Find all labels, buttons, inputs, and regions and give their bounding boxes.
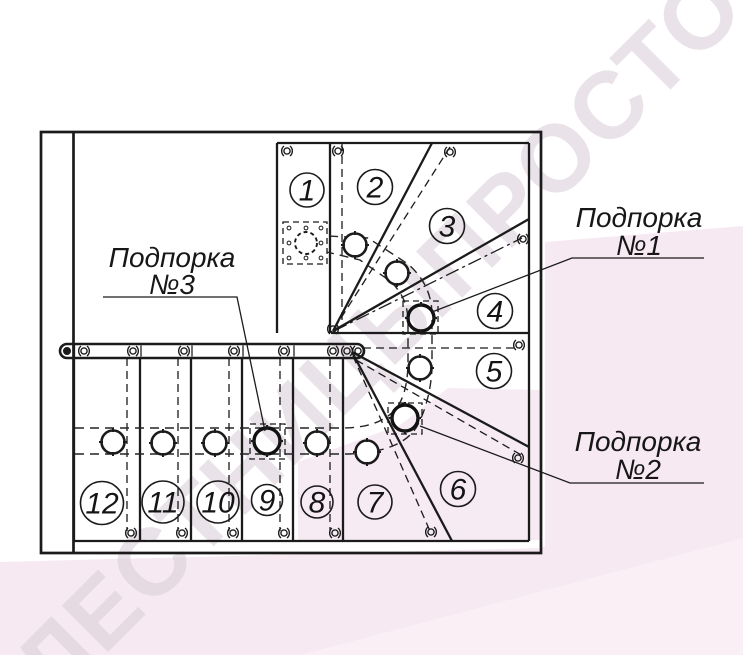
step-number-10: 10 [197, 481, 239, 523]
svg-text:10: 10 [201, 487, 235, 520]
step-number-1: 1 [290, 173, 324, 208]
svg-text:7: 7 [367, 487, 385, 520]
svg-text:Подпорка: Подпорка [575, 426, 702, 457]
svg-text:8: 8 [309, 487, 326, 520]
staircase-plan-drawing: ЛЕСТНИЦЫПРОСТО.RU [0, 0, 743, 655]
support-post-top [283, 222, 327, 264]
handrail-end-cap [63, 347, 71, 355]
svg-text:6: 6 [450, 474, 467, 507]
svg-text:11: 11 [147, 487, 178, 520]
svg-text:2: 2 [366, 172, 384, 205]
step-number-12: 12 [81, 482, 124, 525]
svg-text:5: 5 [486, 356, 503, 389]
svg-text:Подпорка: Подпорка [576, 202, 703, 233]
svg-text:1: 1 [299, 175, 316, 208]
step-number-5: 5 [477, 354, 512, 389]
step-number-11: 11 [142, 481, 184, 523]
step-number-4: 4 [478, 294, 513, 329]
step-number-2: 2 [358, 170, 393, 205]
svg-text:12: 12 [85, 488, 119, 521]
svg-text:№1: №1 [616, 230, 662, 261]
svg-text:4: 4 [487, 296, 504, 329]
svg-text:3: 3 [439, 211, 456, 244]
svg-text:№3: №3 [149, 269, 195, 300]
svg-text:№2: №2 [615, 454, 661, 485]
plan-canvas: ЛЕСТНИЦЫПРОСТО.RU [0, 0, 743, 655]
svg-text:9: 9 [259, 485, 276, 518]
